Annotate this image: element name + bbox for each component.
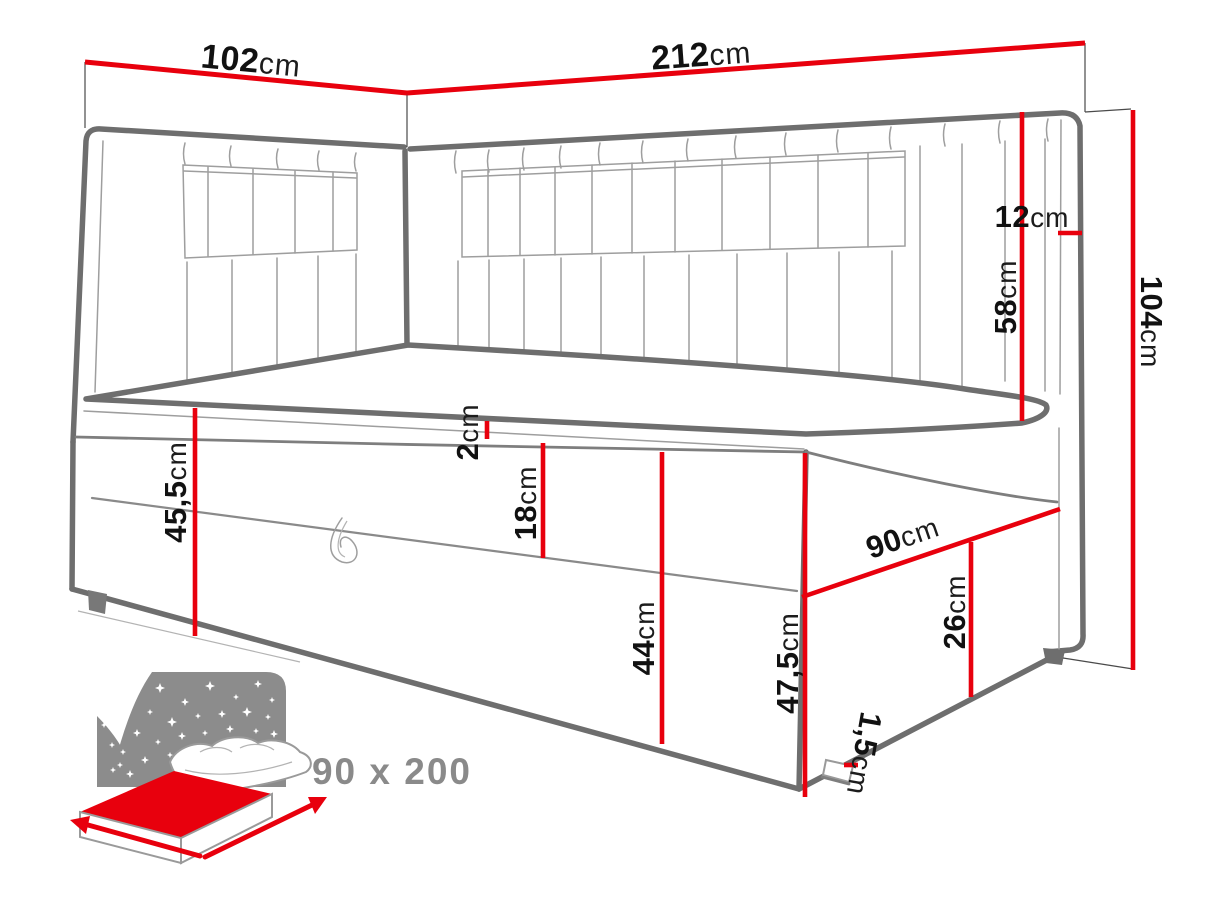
dimension-2cm: 2cm [450,403,485,460]
bed-size-label: 90 x 200 [312,751,472,792]
diagram-canvas: 102cm 212cm 12cm 58cm 104cm 45,5cm 2cm 1… [0,0,1214,911]
dimension-90cm: 90cm [862,508,944,565]
bed-dimension-diagram: 102cm 212cm 12cm 58cm 104cm 45,5cm 2cm 1… [0,0,1214,911]
back-headboard-tufting [455,119,1049,173]
dimension-102cm: 102cm [199,37,302,84]
left-foot [88,590,107,614]
right-foot [1043,648,1065,665]
dimension-18cm: 18cm [508,466,543,541]
base-left-edge [72,442,73,589]
base-side-top-edge [806,452,1057,502]
mattress [86,345,1047,434]
dimension-12cm: 12cm [995,199,1070,234]
dimension-47-5cm: 47,5cm [770,612,805,714]
dimension-1-5cm: 1,5cm [840,709,889,798]
storage-handle [331,518,357,563]
bed-size-icon: 90 x 200 [70,672,472,863]
dimension-104cm: 104cm [1134,276,1169,369]
left-headboard-panel [183,165,357,258]
dimension-58cm: 58cm [988,260,1023,335]
back-headboard-panel [462,151,905,257]
dimension-44cm: 44cm [626,601,661,676]
dimension-26cm: 26cm [937,575,972,650]
headboard-corner-joint [405,151,407,345]
dimension-45-5cm: 45,5cm [158,441,193,543]
storage-lid-seam [92,498,797,591]
